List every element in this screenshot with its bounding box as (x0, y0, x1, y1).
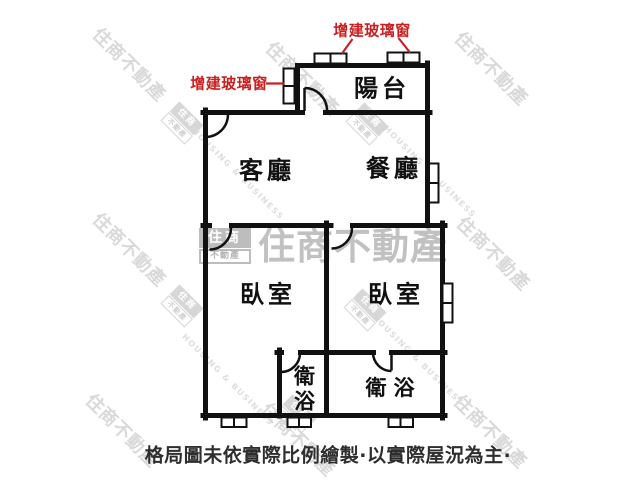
annotation-added-glass-window-top: 增建玻璃窗 (333, 20, 411, 41)
windows (222, 53, 453, 428)
bedroom-right-door (332, 228, 353, 249)
annotation-added-glass-window-left: 增建玻璃窗 (190, 73, 268, 94)
room-label-bedroom-right: 臥室 (364, 275, 424, 310)
room-label-balcony: 陽台 (350, 69, 410, 104)
bedroom-left-door (210, 228, 232, 250)
room-label-bathroom-left: 衛浴 (293, 365, 314, 415)
disclaimer-caption: 格局圖未依實際比例繪製·以實際屋況為主· (145, 441, 511, 468)
floor-plan-drawing (0, 0, 640, 480)
floor-plan-image: 住商不動產 住商不動產 住商不動產 住商不動產 住商不動產 住商不動產 住商不動… (0, 0, 640, 480)
doors (206, 88, 392, 372)
walls (203, 63, 445, 418)
room-label-dining-room: 餐廳 (362, 149, 422, 184)
room-label-bedroom-left: 臥室 (236, 275, 296, 310)
living-room-door (206, 115, 229, 138)
room-label-living-room: 客廳 (235, 151, 295, 186)
balcony-door (305, 88, 328, 111)
leader-line-window-1 (342, 39, 353, 54)
room-label-bathroom-right: 衛浴 (359, 372, 422, 402)
